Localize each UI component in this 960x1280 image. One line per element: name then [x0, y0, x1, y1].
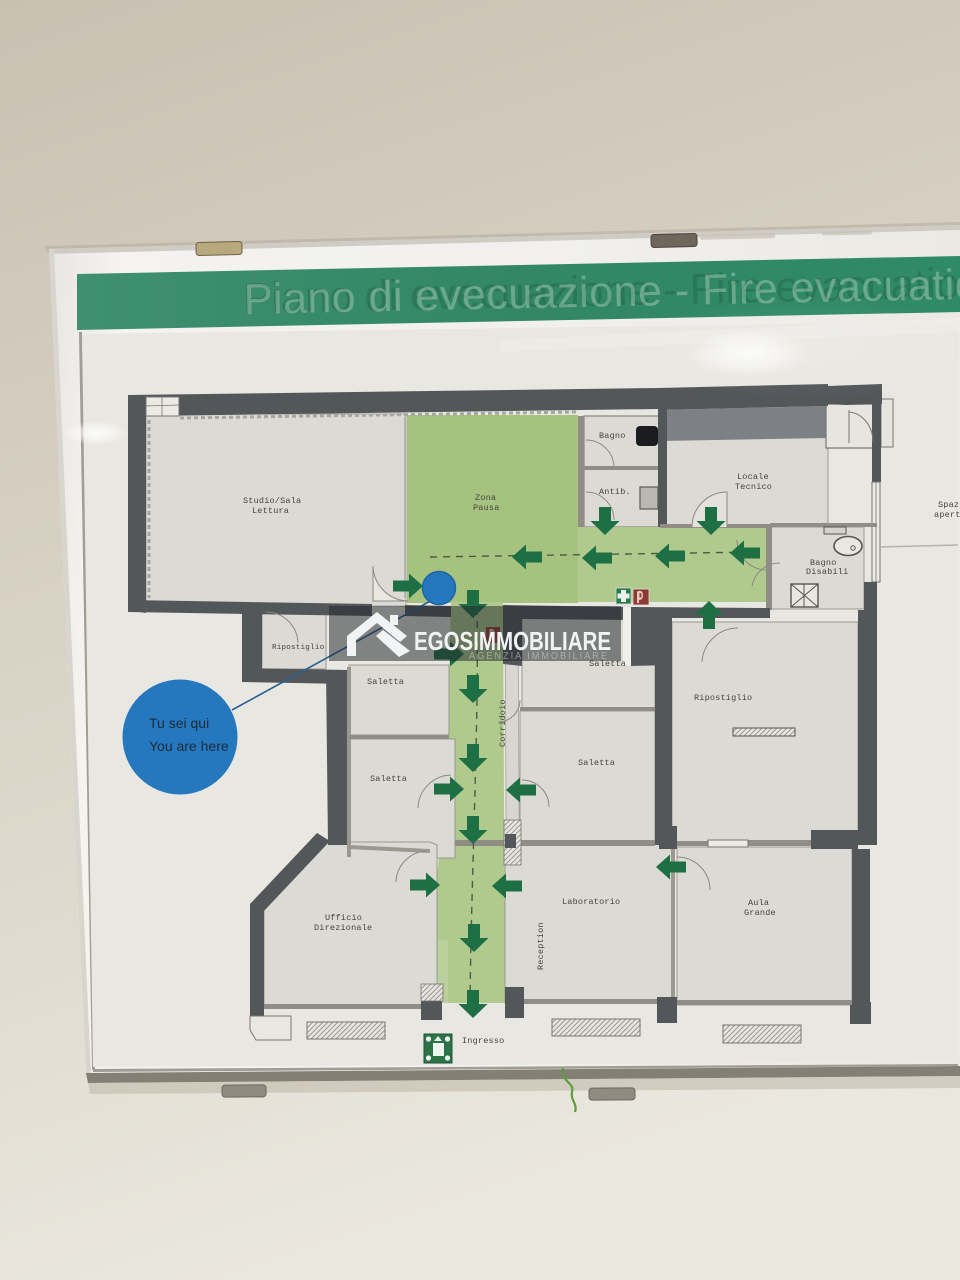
svg-text:Zona: Zona — [475, 493, 496, 503]
svg-text:Laboratorio: Laboratorio — [562, 897, 620, 907]
svg-text:Saletta: Saletta — [367, 677, 404, 687]
svg-text:Ufficio: Ufficio — [325, 913, 362, 923]
svg-text:Ripostiglio: Ripostiglio — [694, 693, 752, 703]
svg-text:Bagno: Bagno — [599, 431, 626, 441]
svg-text:Antib.: Antib. — [599, 487, 631, 497]
svg-text:Corridoio: Corridoio — [498, 699, 508, 747]
svg-text:Tecnico: Tecnico — [735, 482, 772, 492]
svg-text:Grande: Grande — [744, 908, 776, 918]
svg-text:Ripostiglio: Ripostiglio — [272, 644, 325, 652]
svg-text:Saletta: Saletta — [370, 774, 407, 784]
svg-text:Saletta: Saletta — [578, 758, 615, 768]
svg-text:Direzionale: Direzionale — [314, 923, 372, 933]
svg-text:Pausa: Pausa — [473, 503, 500, 513]
svg-text:AGENZIA IMMOBILIARE: AGENZIA IMMOBILIARE — [469, 651, 609, 662]
svg-text:Ingresso: Ingresso — [462, 1036, 504, 1046]
svg-text:Disabili: Disabili — [806, 567, 848, 577]
svg-text:Spaz: Spaz — [938, 500, 959, 510]
svg-text:apert: apert — [934, 510, 960, 520]
svg-text:Reception: Reception — [536, 922, 546, 970]
svg-text:Lettura: Lettura — [252, 506, 289, 516]
svg-text:Aula: Aula — [748, 898, 769, 908]
svg-text:Tu sei qui: Tu sei qui — [149, 715, 209, 731]
svg-text:Locale: Locale — [737, 472, 769, 482]
svg-text:Studio/Sala: Studio/Sala — [243, 496, 301, 506]
svg-text:You are here: You are here — [149, 738, 229, 754]
